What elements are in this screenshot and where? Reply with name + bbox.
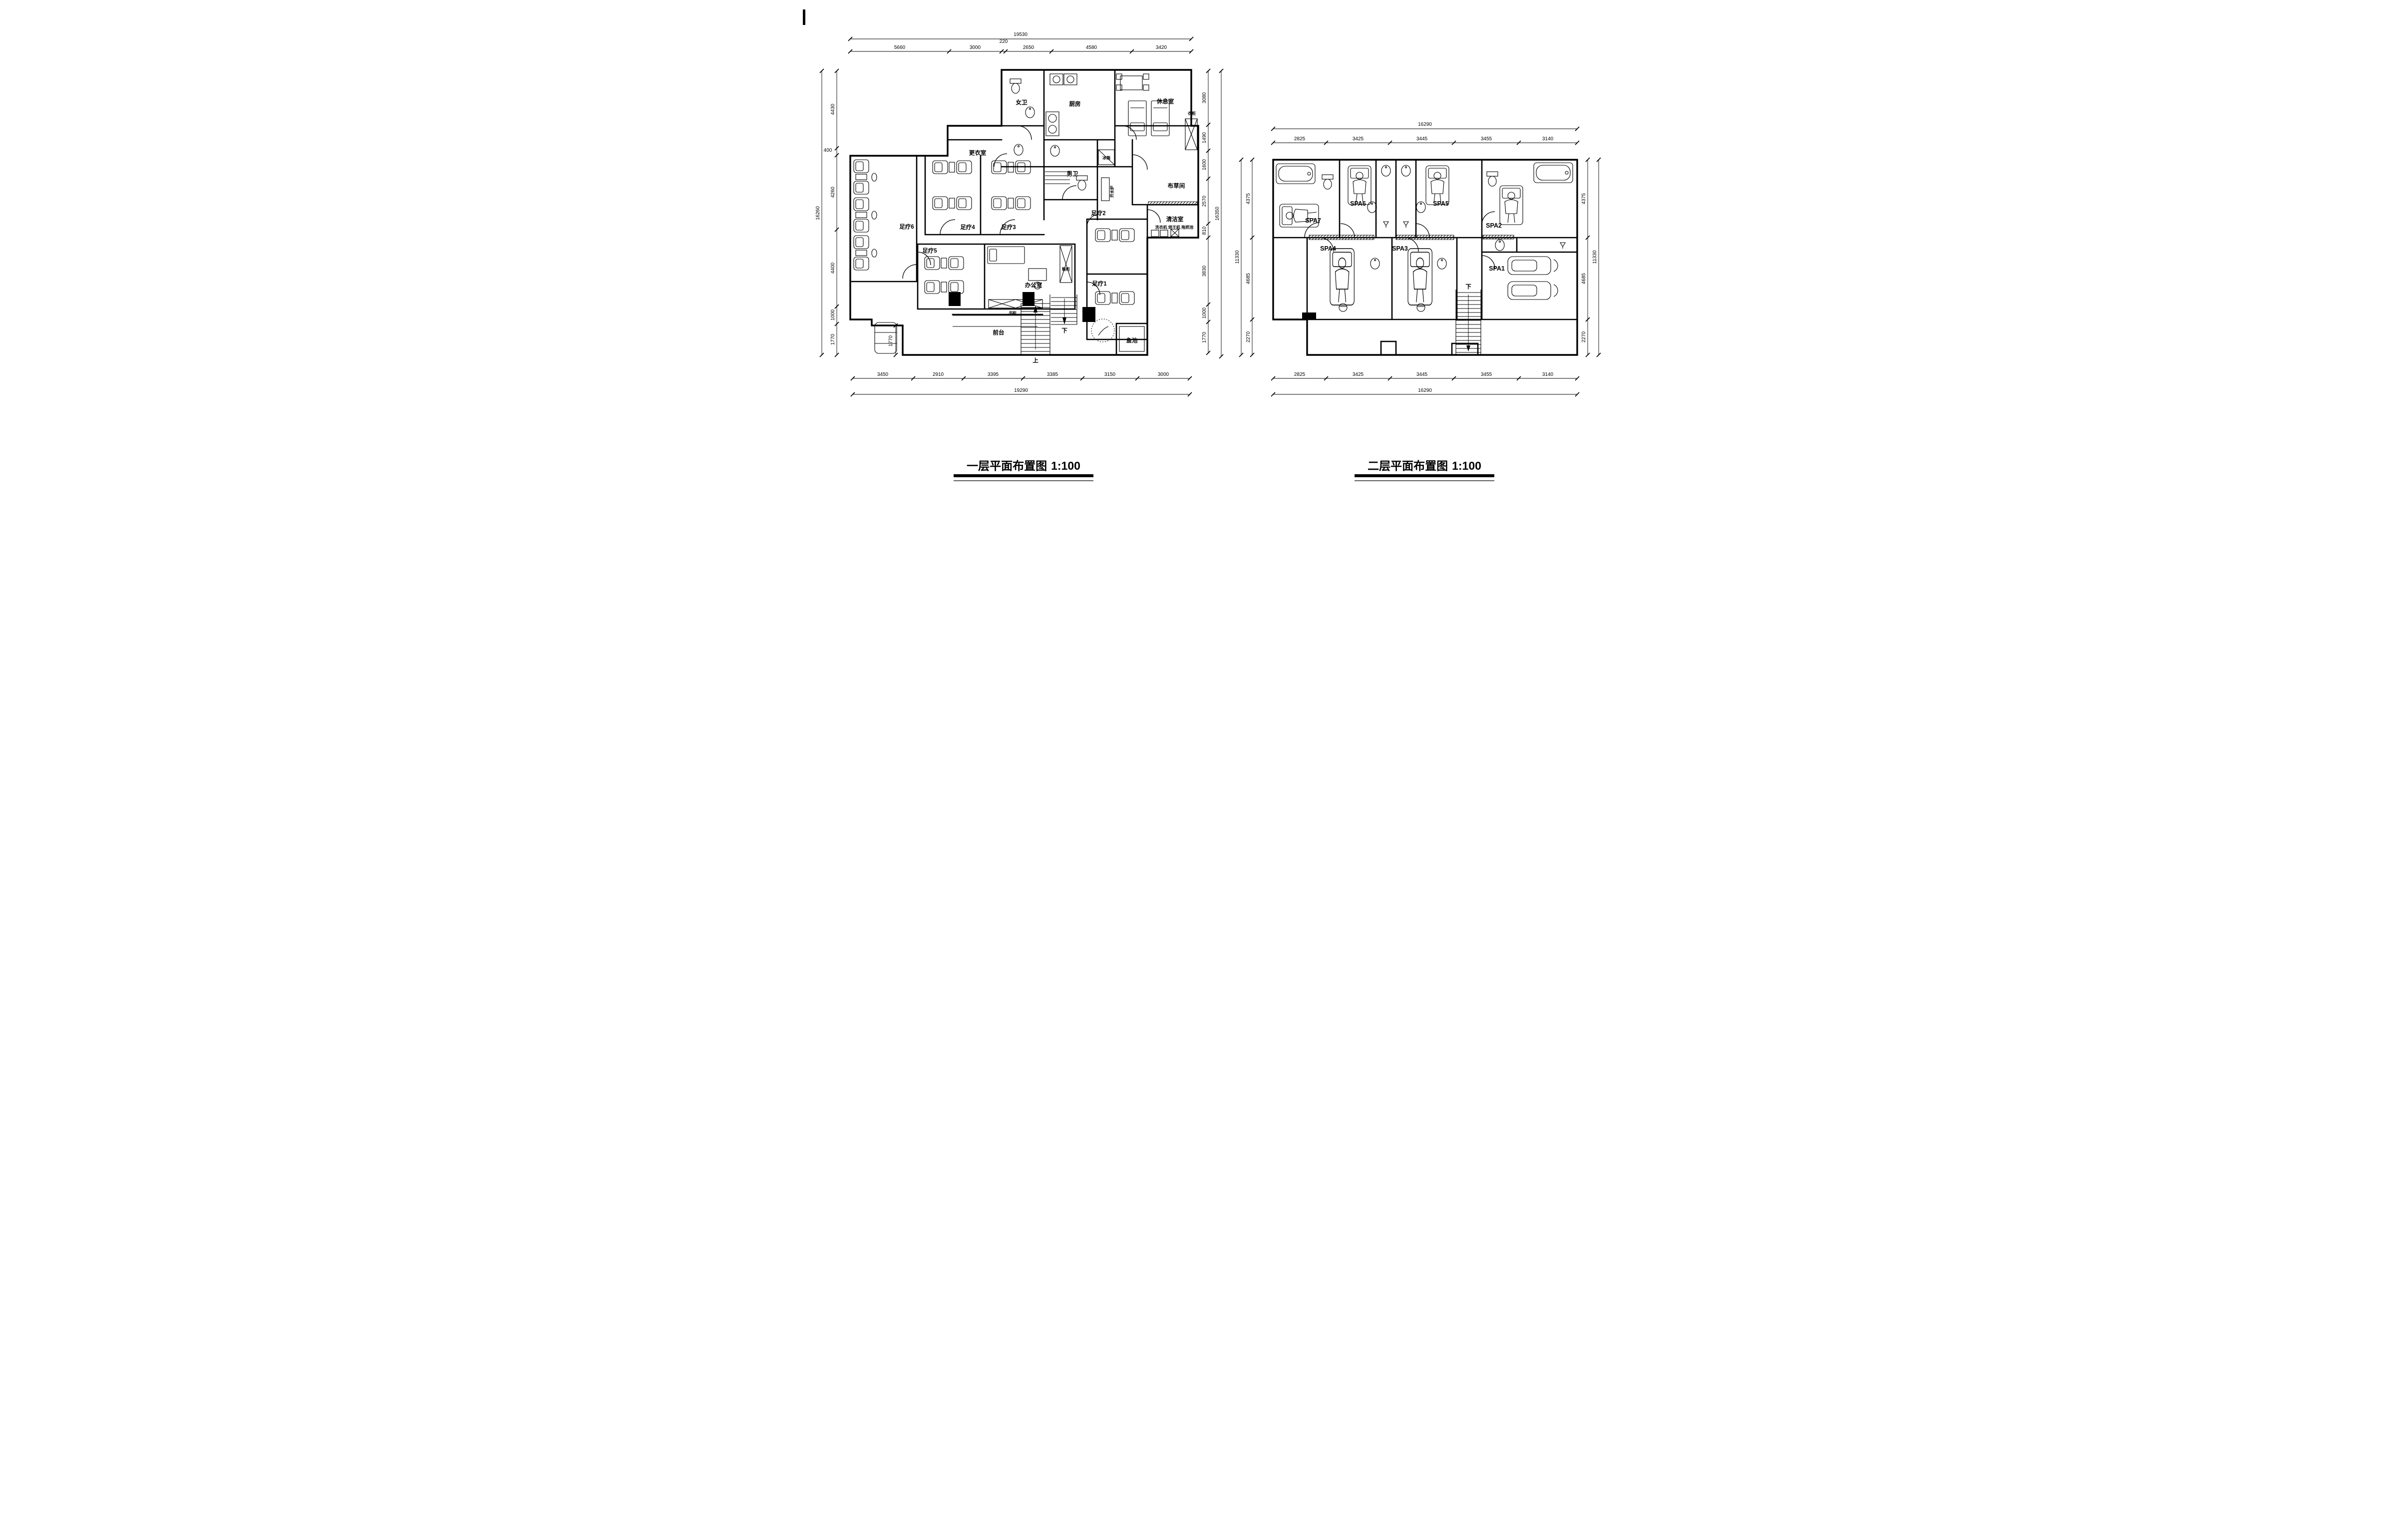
dim: 3385	[1047, 372, 1058, 377]
room-label: 足疗5	[922, 247, 937, 254]
column-block	[1381, 341, 1396, 355]
dim: 3425	[1353, 136, 1364, 142]
room-label: 足疗1	[1092, 280, 1107, 287]
dim: 2825	[1294, 136, 1306, 142]
plan2-room-labels: SPA7 SPA6 SPA5 SPA2 SPA4 SPA3 SPA1 下	[1305, 200, 1505, 290]
plan1-walls	[850, 70, 1198, 355]
room-label: 开水炉	[1109, 186, 1114, 198]
room-label: SPA1	[1489, 265, 1505, 272]
dim: 1490	[1202, 132, 1207, 143]
dim: 3000	[970, 45, 981, 50]
dim: 5660	[894, 45, 906, 50]
column-pad	[949, 292, 961, 306]
room-label: 男卫	[1067, 171, 1079, 177]
hatched-wall	[1483, 235, 1514, 239]
room-label: 清洁室	[1166, 216, 1184, 223]
plan1-doors	[903, 126, 1160, 295]
room-label: SPA4	[1320, 245, 1336, 252]
dim: 3080	[1202, 92, 1207, 103]
dim: 1770	[830, 333, 836, 345]
plan2-stairs	[1456, 290, 1481, 355]
room-label: 足疗3	[1001, 224, 1016, 231]
column-pad	[1302, 312, 1316, 319]
dim: 3445	[1416, 136, 1428, 142]
dim-interior: 1770	[888, 335, 894, 346]
column-pad	[1082, 307, 1095, 322]
dim: 3420	[1156, 45, 1167, 50]
dim: 4260	[830, 186, 836, 198]
dim: 2570	[1202, 195, 1207, 207]
dim: 3450	[877, 372, 889, 377]
dim-total-left: 11330	[1235, 250, 1240, 264]
room-label: 鞋柜	[1062, 267, 1070, 272]
dim-total-top: 19530	[1014, 32, 1028, 37]
room-label: 鱼池	[1126, 337, 1138, 344]
stair-up-label: 上	[1032, 357, 1038, 364]
dim: 4430	[830, 103, 836, 115]
first-floor-plan: 女卫 厨房 休息室 衣柜 冰箱 男卫 更衣室 开水炉 布草间 清洁室 洗衣机 烘…	[815, 32, 1223, 481]
dim: 3140	[1542, 136, 1554, 142]
dim-total-left: 16260	[815, 206, 821, 220]
room-label: 洗衣机 烘干机 拖把池	[1155, 225, 1193, 230]
dim: 810	[1202, 226, 1207, 235]
dim: 3830	[1202, 265, 1207, 277]
room-label: 休息室	[1156, 98, 1174, 105]
second-floor-plan: SPA7 SPA6 SPA5 SPA2 SPA4 SPA3 SPA1 下 162…	[1235, 122, 1601, 481]
dim: 4400	[830, 262, 836, 274]
dim: 3395	[988, 372, 999, 377]
dim-total-right: 16350	[1215, 207, 1220, 221]
stair-down-label: 下	[1465, 284, 1471, 290]
room-label: 书柜	[1009, 310, 1017, 315]
plan1-stairs	[1021, 295, 1077, 355]
room-label: 女卫	[1016, 99, 1028, 106]
dim: 3445	[1416, 372, 1428, 377]
room-label: SPA6	[1350, 200, 1366, 207]
room-label: 布草间	[1167, 182, 1185, 189]
dim: 2270	[1246, 331, 1251, 342]
plan2-title-text: 二层平面布置图1:100	[1368, 459, 1481, 472]
dim: 1600	[1202, 159, 1207, 170]
room-label: SPA3	[1392, 245, 1408, 252]
floorplan-canvas: 女卫 厨房 休息室 衣柜 冰箱 男卫 更衣室 开水炉 布草间 清洁室 洗衣机 烘…	[803, 0, 1605, 513]
dim: 220	[1000, 39, 1008, 44]
dim: 3455	[1481, 372, 1492, 377]
dim: 3140	[1542, 372, 1554, 377]
dim: 3150	[1104, 372, 1116, 377]
dim: 4685	[1581, 273, 1587, 284]
room-label: SPA2	[1486, 222, 1502, 229]
dim: 2270	[1581, 331, 1587, 342]
dim: 1000	[830, 309, 836, 320]
room-label: 足疗2	[1091, 210, 1105, 217]
dim: 2650	[1023, 45, 1034, 50]
dim-total-bottom: 16290	[1418, 388, 1432, 393]
plan1-title-text: 一层平面布置图1:100	[967, 459, 1080, 472]
edge-artifact	[803, 9, 805, 25]
dim: 2825	[1294, 372, 1306, 377]
dim: 1770	[1202, 331, 1207, 343]
dim-total-bottom: 19290	[1014, 388, 1028, 393]
plan2-title: 二层平面布置图1:100	[1355, 459, 1494, 481]
dim: 400	[824, 148, 832, 153]
dim-total-top: 16290	[1418, 122, 1432, 127]
dim-total-right: 11330	[1592, 250, 1598, 264]
plan1-title: 一层平面布置图1:100	[954, 459, 1093, 481]
shoe-cabinet	[1060, 246, 1072, 283]
dim: 4580	[1086, 45, 1097, 50]
dim: 1000	[1202, 307, 1207, 318]
hatched-wall	[1309, 235, 1374, 240]
dim: 4375	[1246, 193, 1251, 204]
room-label: 更衣室	[969, 149, 987, 156]
room-label: 前台	[993, 329, 1005, 336]
room-label: 冰箱	[1102, 155, 1110, 160]
plan2-doors	[1305, 212, 1495, 269]
room-label: 足疗6	[899, 223, 914, 230]
room-label: 办公室	[1025, 282, 1042, 289]
dim: 4375	[1581, 193, 1587, 204]
plan2-walls	[1273, 160, 1577, 355]
room-label: 足疗4	[960, 224, 975, 231]
hatched-wall	[1148, 202, 1197, 205]
dim: 3425	[1353, 372, 1364, 377]
room-label: 衣柜	[1188, 111, 1196, 116]
room-label: SPA7	[1305, 217, 1321, 224]
dim: 3455	[1481, 136, 1492, 142]
room-label: 厨房	[1069, 100, 1081, 107]
stair-down-label: 下	[1061, 327, 1067, 334]
dim: 3000	[1158, 372, 1169, 377]
dim: 4685	[1246, 273, 1251, 284]
dim: 2910	[933, 372, 944, 377]
room-label: SPA5	[1433, 200, 1449, 207]
drawing-sheet: 女卫 厨房 休息室 衣柜 冰箱 男卫 更衣室 开水炉 布草间 清洁室 洗衣机 烘…	[803, 0, 1605, 513]
